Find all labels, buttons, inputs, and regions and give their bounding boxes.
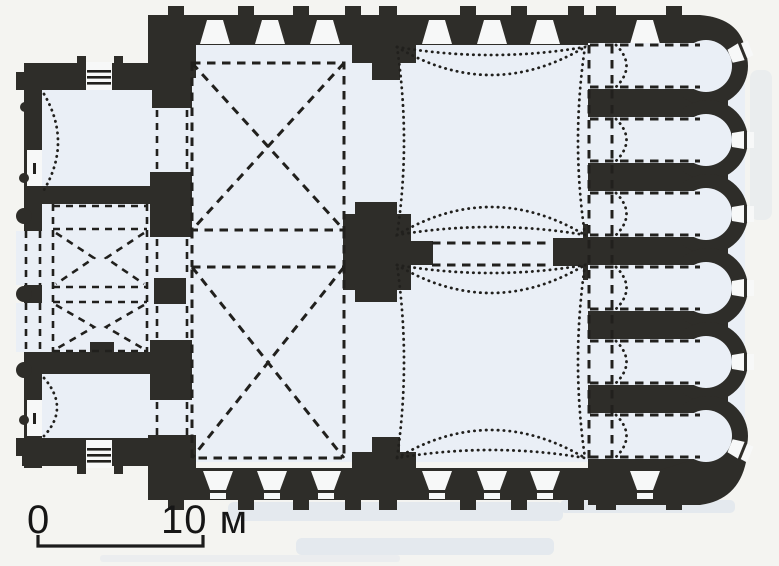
north-t-pier-stem xyxy=(372,45,400,80)
floor-plan-canvas: 0 10 м xyxy=(0,0,779,566)
scale-ten-meters-label: 10 м xyxy=(161,498,248,542)
floor-plan-figure: 0 10 м xyxy=(0,0,779,566)
scale-zero-label: 0 xyxy=(27,498,50,542)
south-t-pier-stem xyxy=(372,437,400,470)
